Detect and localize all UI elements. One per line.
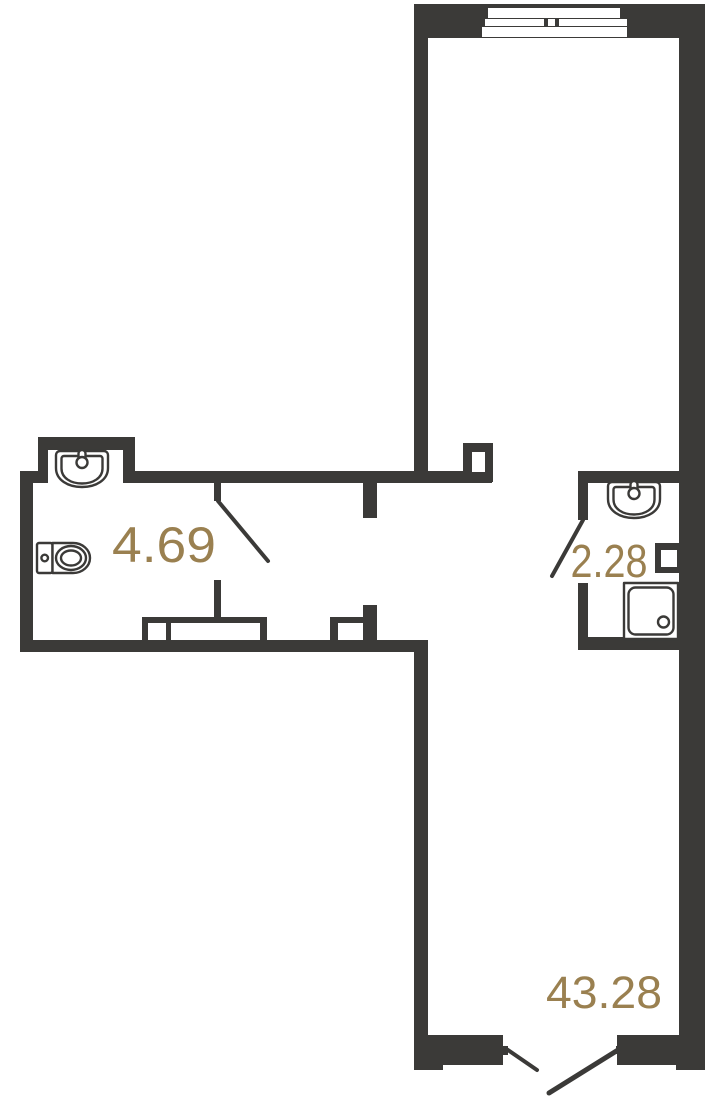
wall-partition-lower-stub: [214, 580, 221, 623]
window-outer-sill: [488, 8, 620, 18]
shaft-d-interior: [472, 452, 485, 472]
wall-passage-jamb: [363, 483, 377, 518]
shaft-c-interior: [661, 550, 677, 567]
door-swing-entrance-left: [505, 1048, 537, 1070]
shaft-a-left: [142, 617, 148, 640]
wall-entrance-right-step: [676, 1065, 705, 1070]
shaft-a-top: [142, 617, 267, 623]
wall-bigroom-left-upper: [414, 4, 428, 483]
window-inner-sill: [482, 27, 627, 37]
wall-bigroom-left-lower: [414, 640, 428, 1065]
wall-entrance-left-step: [414, 1065, 443, 1070]
window-divider: [555, 19, 559, 26]
sink-tap-knob: [629, 488, 640, 499]
wall-entrance-right: [617, 1035, 679, 1065]
sink-icon: [608, 481, 660, 518]
shaft-a-divider: [166, 617, 171, 640]
room-label-shower-room: 2.28: [571, 535, 648, 587]
sink-tap-knob: [77, 457, 88, 468]
shaft-b-pier: [363, 605, 377, 640]
toilet-icon: [37, 543, 90, 573]
shaft-a-right: [260, 617, 267, 640]
wall-niche-right: [123, 437, 135, 483]
shaft-b-left: [330, 617, 338, 640]
wall-corridor-top: [123, 471, 492, 483]
room-label-bathroom: 4.69: [112, 517, 216, 573]
room-label-living-room: 43.28: [546, 967, 662, 1018]
wall-shower-left-upper: [578, 483, 588, 520]
window: [482, 8, 627, 37]
wall-wing-bottom: [20, 640, 428, 652]
wall-niche-top: [38, 437, 135, 450]
sink-icon: [56, 450, 108, 487]
floor-plan-svg: 4.69 2.28 43.28: [0, 0, 720, 1109]
window-divider: [544, 19, 548, 26]
shower-drain: [658, 617, 669, 628]
wall-partition-upper-stub: [214, 483, 221, 501]
door-swing-bathroom: [218, 501, 268, 561]
floor-plan: 4.69 2.28 43.28: [0, 0, 720, 1109]
wall-entrance-left: [414, 1035, 503, 1065]
door-swing-entrance-right: [549, 1050, 618, 1093]
toilet-bowl-inner: [61, 551, 81, 566]
toilet-flush-button: [41, 555, 48, 562]
shower-tray-icon: [624, 583, 678, 639]
wall-left: [20, 471, 33, 652]
wall-right: [679, 4, 705, 1070]
